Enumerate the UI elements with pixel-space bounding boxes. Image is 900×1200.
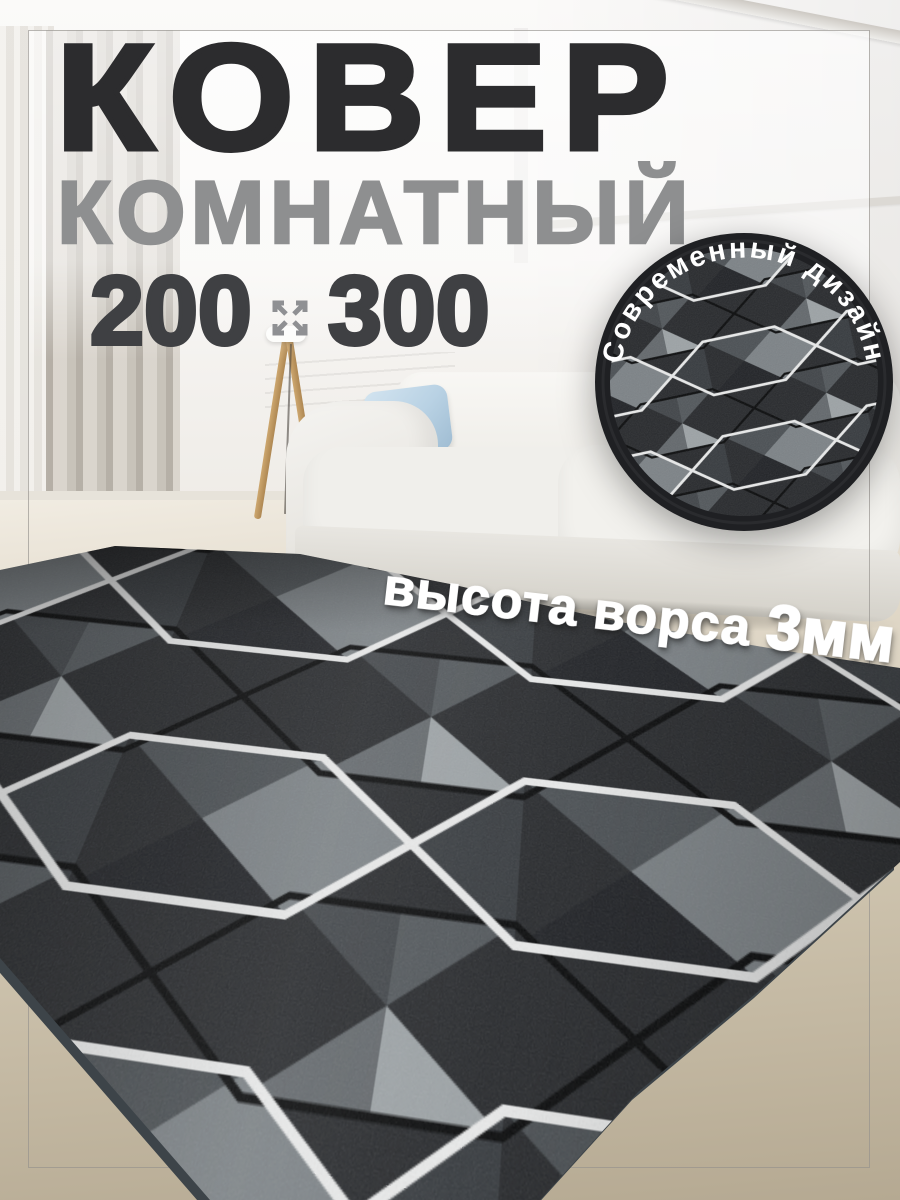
page-title: КОВЕР [56, 22, 684, 172]
expand-arrows-icon [267, 295, 313, 341]
pile-height-value: 3мм [763, 593, 899, 676]
size-height-value: 300 [328, 262, 490, 359]
design-badge-circle: Современный дизайн [594, 232, 894, 532]
size-row: 200 300 [90, 262, 490, 359]
size-width-value: 200 [90, 262, 252, 359]
product-image: КОВЕР КОМНАТНЫЙ 200 300 Совреме [0, 0, 900, 1200]
